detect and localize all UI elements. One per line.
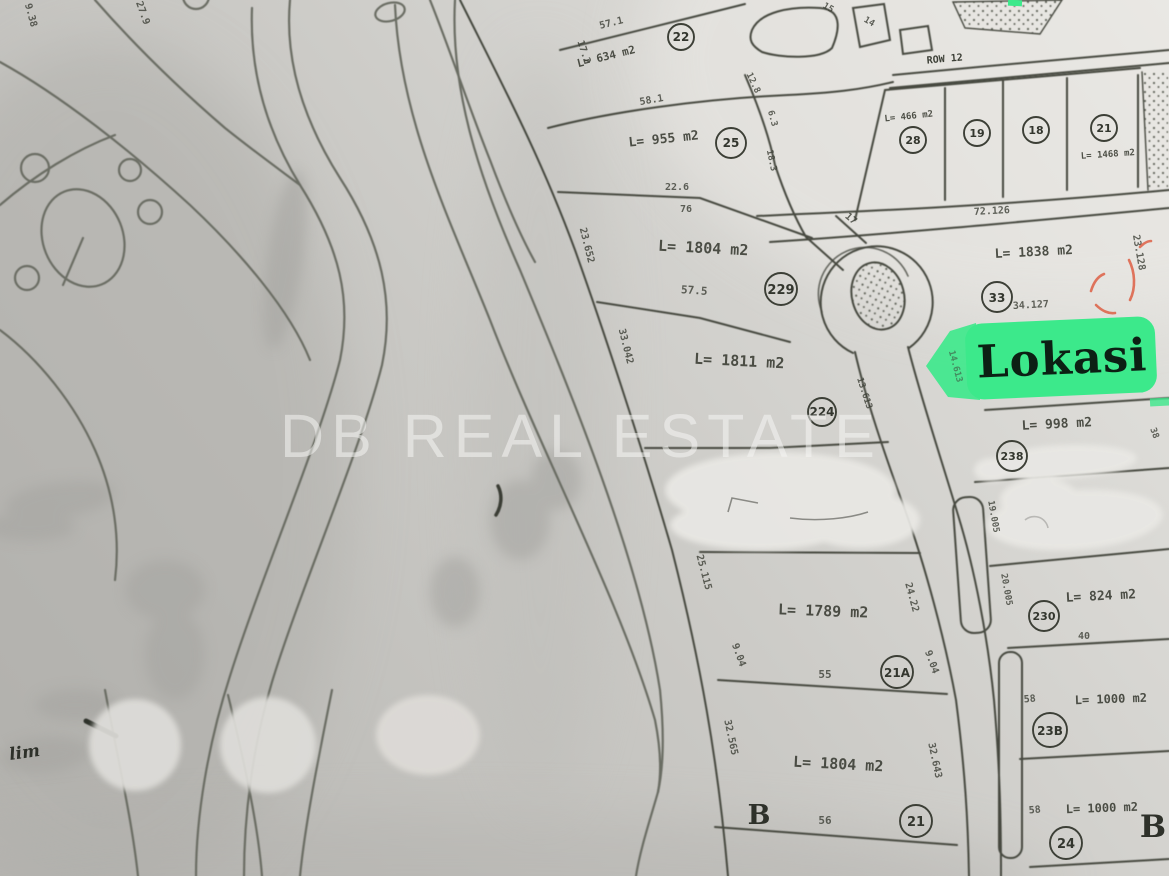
plot-number: 229 <box>767 283 794 298</box>
plot-number: 238 <box>1001 450 1024 463</box>
dimension-label: 22.6 <box>665 182 689 193</box>
site-plan-map: lim <box>0 0 1169 876</box>
plot-number: 21 <box>1096 122 1111 135</box>
area-label: L= 1789 m2 <box>778 600 869 621</box>
area-label: L= 1000 m2 <box>1066 800 1139 817</box>
dimension-label: 34.127 <box>1013 299 1050 312</box>
block-letter: B <box>1140 809 1166 845</box>
dimension-label: 56 <box>818 814 832 827</box>
plot-number: 21A <box>884 666 911 680</box>
dimension-label: 40 <box>1078 631 1090 642</box>
plot-number: 28 <box>905 134 920 147</box>
plot-number: 21 <box>907 815 925 830</box>
dimension-label: 55 <box>818 668 831 681</box>
badge-label: Lokasi <box>976 328 1149 388</box>
dimension-label: 76 <box>680 204 692 215</box>
plot-number: 19 <box>969 127 984 140</box>
plot-number: 24 <box>1057 837 1075 852</box>
plot-number: 25 <box>723 136 740 150</box>
plot-number: 230 <box>1033 610 1056 623</box>
dimension-label: 58 <box>1028 805 1041 817</box>
block-letter: B <box>748 800 771 831</box>
green-speck <box>1150 397 1169 406</box>
watermark-text: DB REAL ESTATE <box>280 402 882 470</box>
handwriting-fragment: lim <box>8 741 41 765</box>
dimension-label: 72.126 <box>974 205 1011 218</box>
dimension-label: 58 <box>1023 694 1036 706</box>
plot-number: 18 <box>1028 124 1043 137</box>
green-speck <box>1008 0 1022 6</box>
area-label: L= 1000 m2 <box>1075 691 1148 708</box>
dimension-label: 57.5 <box>681 283 708 298</box>
plot-number: 23B <box>1037 724 1063 738</box>
plot-number: 33 <box>989 291 1006 305</box>
plot-number: 22 <box>673 30 690 44</box>
scanned-site-plan: lim <box>0 0 1169 876</box>
